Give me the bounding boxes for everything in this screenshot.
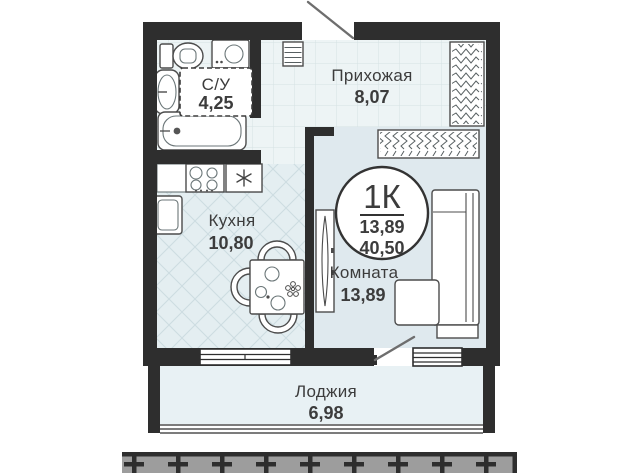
bathroom-sink-icon — [155, 70, 179, 114]
hallway-area: 8,07 — [354, 87, 389, 107]
badge-room-type: 1К — [363, 178, 401, 215]
bathroom-label-box: С/У 4,25 — [180, 68, 252, 116]
living-room-area: 13,89 — [340, 285, 385, 305]
entry-door — [308, 2, 353, 38]
area-badge: 1К 13,89 40,50 — [336, 167, 428, 259]
tv-stand-icon — [316, 210, 334, 312]
room-window-icon — [413, 348, 462, 366]
living-room-label: Комната — [330, 263, 399, 282]
kitchen-label: Кухня — [209, 211, 256, 230]
toilet-icon — [160, 43, 203, 69]
wardrobe-right-icon — [450, 42, 484, 126]
vent-shaft-icon — [283, 42, 303, 66]
kitchen-window-icon — [200, 349, 291, 365]
sofa-seat — [395, 280, 439, 325]
loggia-glazing — [160, 424, 483, 433]
badge-total-area: 40,50 — [359, 238, 404, 258]
wardrobe-bottom-icon — [378, 130, 479, 158]
stove-icon — [186, 164, 224, 192]
badge-living-area: 13,89 — [359, 217, 404, 237]
loggia-area: 6,98 — [308, 403, 343, 423]
washing-machine-icon — [212, 40, 249, 68]
kitchen-area: 10,80 — [208, 233, 253, 253]
floorplan-canvas: С/У 4,25 Прихожая 8,07 Кухня 10,80 Комна… — [0, 0, 640, 473]
bathroom-label: С/У — [202, 75, 231, 94]
facade-strip — [122, 452, 517, 473]
hallway-label: Прихожая — [331, 66, 412, 85]
fridge-icon — [226, 164, 262, 192]
bathtub-icon — [158, 112, 246, 150]
loggia-label: Лоджия — [295, 382, 357, 401]
bathroom-area: 4,25 — [198, 93, 233, 113]
